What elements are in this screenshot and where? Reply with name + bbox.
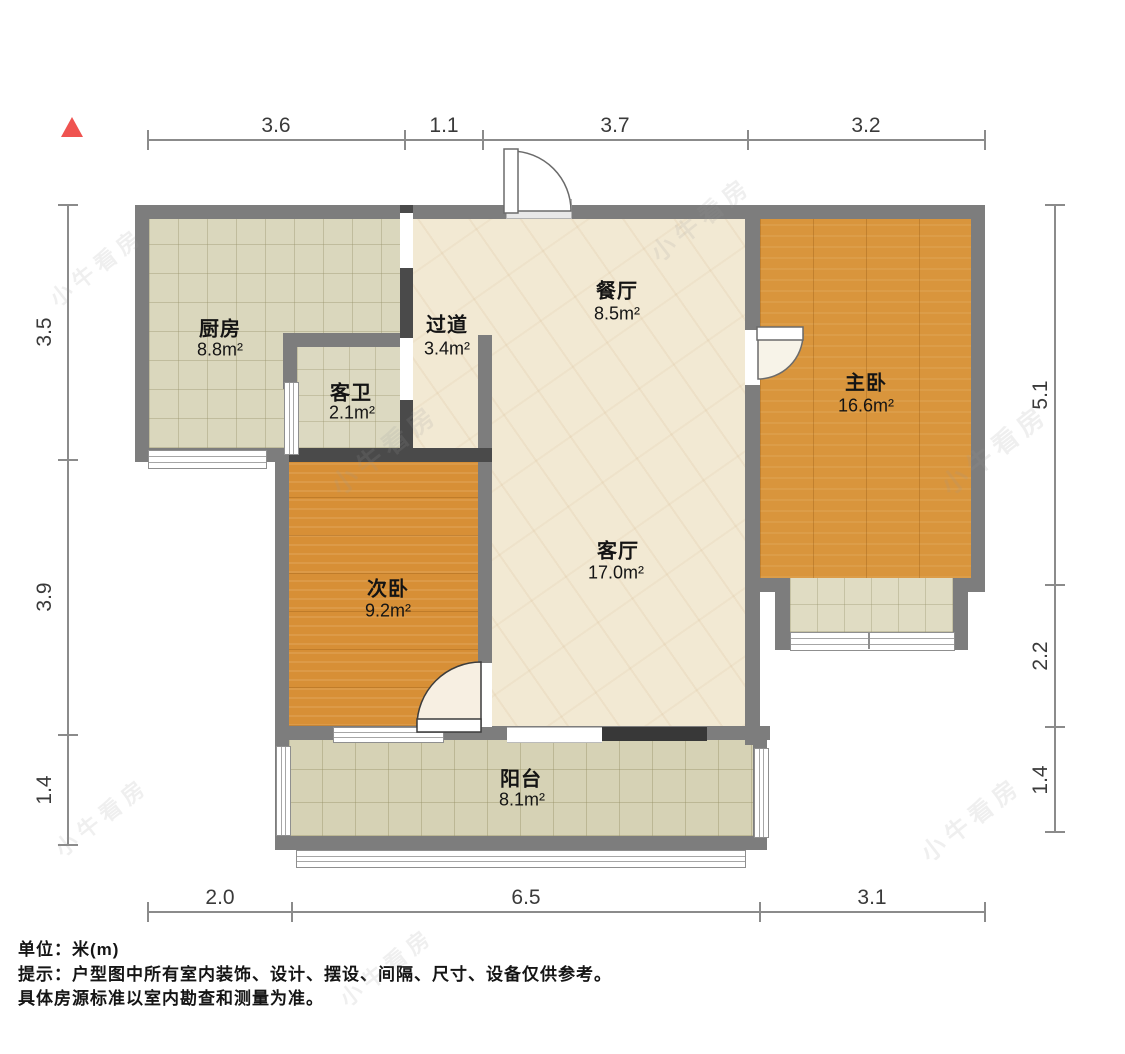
wall — [275, 836, 767, 850]
tick — [482, 130, 484, 150]
wall — [775, 578, 790, 650]
room-area-balcony: 8.1m² — [499, 790, 545, 811]
room-label-master: 主卧 — [845, 367, 887, 396]
wall — [602, 727, 707, 741]
tick — [1045, 726, 1065, 728]
tick — [404, 130, 406, 150]
dim-right-3: 1.4 — [1029, 765, 1053, 794]
tick — [58, 734, 78, 736]
tick — [291, 902, 293, 922]
wall — [283, 333, 413, 347]
room-area-kitchen: 8.8m² — [197, 340, 243, 361]
room-label-dining: 餐厅 — [596, 275, 638, 304]
room-area-living: 17.0m² — [588, 563, 644, 584]
dim-bottom-1: 2.0 — [205, 886, 234, 910]
room-label-guest-bath: 客卫 — [330, 377, 372, 406]
bedroom2-door-opening — [478, 663, 492, 727]
dim-bottom-3: 3.1 — [857, 886, 886, 910]
room-label-bedroom2: 次卧 — [367, 573, 409, 602]
bay-window-floor — [790, 578, 953, 632]
unit-note: 单位：米(m) — [18, 938, 612, 963]
dim-line-right — [1054, 205, 1056, 832]
tick — [747, 130, 749, 150]
footer-notes: 单位：米(m) 提示：户型图中所有室内装饰、设计、摆设、间隔、尺寸、设备仅供参考… — [18, 938, 612, 1012]
dim-left-2: 3.9 — [33, 582, 57, 611]
north-arrow-icon — [61, 117, 83, 137]
bay-window-divider — [868, 632, 870, 649]
bedroom2-window — [333, 727, 444, 743]
room-area-guest-bath: 2.1m² — [329, 403, 375, 424]
room-label-kitchen: 厨房 — [199, 313, 241, 342]
room-area-hallway: 3.4m² — [424, 339, 470, 360]
disclaimer-line2: 具体房源标准以室内勘查和测量为准。 — [18, 987, 612, 1012]
balcony-left-window — [276, 746, 291, 836]
dim-top-1: 3.6 — [261, 114, 290, 138]
watermark: 小牛看房 — [912, 767, 1028, 868]
room-area-dining: 8.5m² — [594, 304, 640, 325]
bay-window — [790, 632, 955, 651]
tick — [147, 902, 149, 922]
dim-top-2: 1.1 — [429, 114, 458, 138]
bath-door-opening — [400, 338, 413, 400]
dim-line-bottom — [148, 911, 985, 913]
tick — [759, 902, 761, 922]
kitchen-window — [148, 450, 267, 469]
room-area-bedroom2: 9.2m² — [365, 601, 411, 622]
room-label-hallway: 过道 — [426, 309, 468, 338]
room-area-master: 16.6m² — [838, 396, 894, 417]
dim-top-3: 3.7 — [600, 114, 629, 138]
dim-left-1: 3.5 — [33, 317, 57, 346]
entrance-threshold — [506, 199, 572, 219]
tick — [1045, 831, 1065, 833]
balcony-right-window — [754, 748, 769, 838]
dim-top-4: 3.2 — [851, 114, 880, 138]
master-door-opening — [745, 330, 760, 385]
watermark: 小牛看房 — [47, 769, 155, 863]
room-label-balcony: 阳台 — [500, 763, 542, 792]
dim-line-top — [148, 139, 985, 141]
wall — [283, 333, 297, 389]
balcony-window — [296, 850, 746, 868]
tick — [1045, 204, 1065, 206]
disclaimer-line1: 提示：户型图中所有室内装饰、设计、摆设、间隔、尺寸、设备仅供参考。 — [18, 963, 612, 988]
tick — [984, 130, 986, 150]
tick — [984, 902, 986, 922]
kitchen-door-opening — [400, 213, 413, 268]
room-label-living: 客厅 — [597, 535, 639, 564]
tick — [147, 130, 149, 150]
wall — [953, 578, 968, 650]
tick — [58, 204, 78, 206]
tick — [1045, 584, 1065, 586]
tick — [58, 459, 78, 461]
dim-bottom-2: 6.5 — [511, 886, 540, 910]
wall — [971, 205, 985, 592]
bath-window — [284, 382, 299, 455]
wall — [745, 205, 760, 745]
watermark: 小牛看房 — [42, 219, 150, 313]
floor-plan: 厨房 8.8m² 客卫 2.1m² 过道 3.4m² 餐厅 8.5m² 主卧 1… — [0, 0, 1125, 1054]
balcony-door-opening — [507, 727, 602, 743]
dim-right-2: 2.2 — [1029, 641, 1053, 670]
dim-left-3: 1.4 — [33, 775, 57, 804]
